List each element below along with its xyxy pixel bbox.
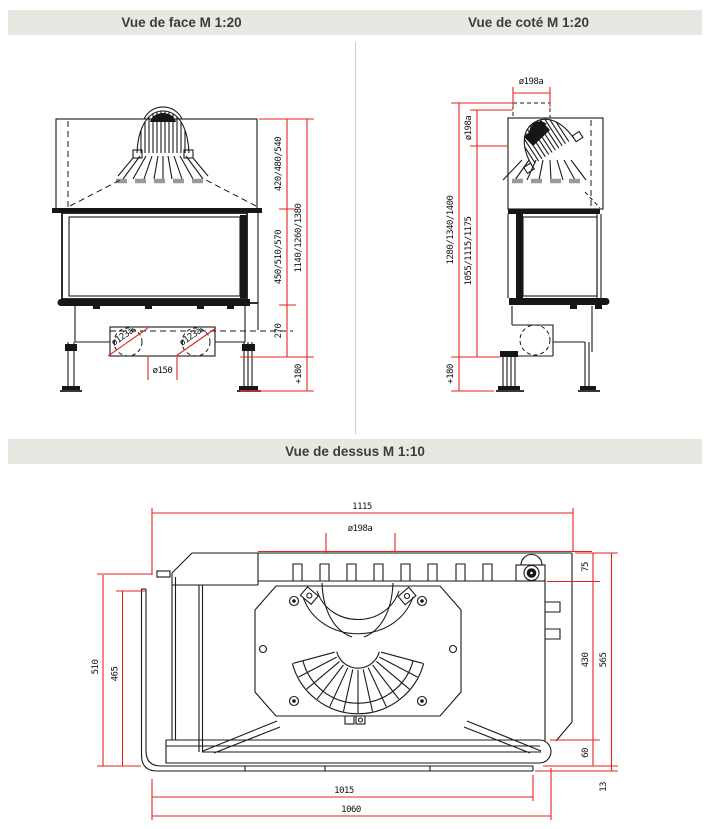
dim-front-feet: +180 [294,364,304,384]
damper-mechanism [255,583,461,724]
top-view-drawing: 1115 ø198a 75 430 60 565 13 510 465 1015… [91,502,618,820]
front-dimension-lines [148,119,314,391]
dim-side-feet: +180 [446,364,456,384]
dim-top-side-depth: 430 [581,653,591,668]
lower-title-bar: Vue de dessus M 1:10 [8,439,702,464]
dim-side-flue-side: ø198a [464,116,474,141]
hearth-diagonals [203,721,541,753]
dim-front-base-diameter: ø150 [153,366,173,376]
dim-side-flue-top: ø198a [519,77,544,87]
air-control-knob [516,555,545,582]
door-side [508,209,610,309]
damper-fan-spokes [293,652,422,713]
dim-front-seg-top: 420/480/540 [274,137,284,191]
dim-top-overall-width: 1115 [352,502,372,512]
dim-top-depth-glass: 510 [91,660,101,675]
dim-top-flue-dia: ø198a [348,524,373,534]
dim-top-offset: 75 [581,562,591,572]
dim-front-seg-low: 270 [274,324,284,339]
dim-top-depth-inner: 465 [111,667,121,682]
view-divider-line [355,42,356,434]
dim-front-overall: 1140/1260/1380 [294,203,304,272]
side-view-drawing: ø198a ø198a 1055/1115/1175 1280/1340/140… [446,77,610,391]
dim-front-seg-mid: 450/510/570 [274,230,284,284]
dim-top-overall-depth: 565 [599,653,609,668]
dim-top-glass-width: 1015 [334,786,354,796]
top-view-title: Vue de dessus M 1:10 [8,444,702,459]
door-front [52,208,262,309]
legs-side [496,342,600,391]
technical-drawing-page: 420/480/540 450/510/570 270 1140/1260/13… [0,0,710,829]
base-side [500,306,592,356]
dim-side-height-outer: 1280/1340/1400 [446,195,456,264]
upper-title-bar: Vue de face M 1:20 Vue de coté M 1:20 [8,10,702,35]
side-view-title: Vue de coté M 1:20 [355,15,702,30]
flue-dome-side [503,102,586,181]
front-view-drawing: 420/480/540 450/510/570 270 1140/1260/13… [52,107,314,391]
dim-top-front-width: 1060 [341,805,361,815]
dim-side-height-inner: 1055/1115/1175 [464,216,474,285]
vent-slots [293,564,492,581]
dim-top-glass-thickness: 13 [599,782,609,792]
front-view-title: Vue de face M 1:20 [8,15,355,30]
dim-top-front-strip: 60 [581,748,591,758]
